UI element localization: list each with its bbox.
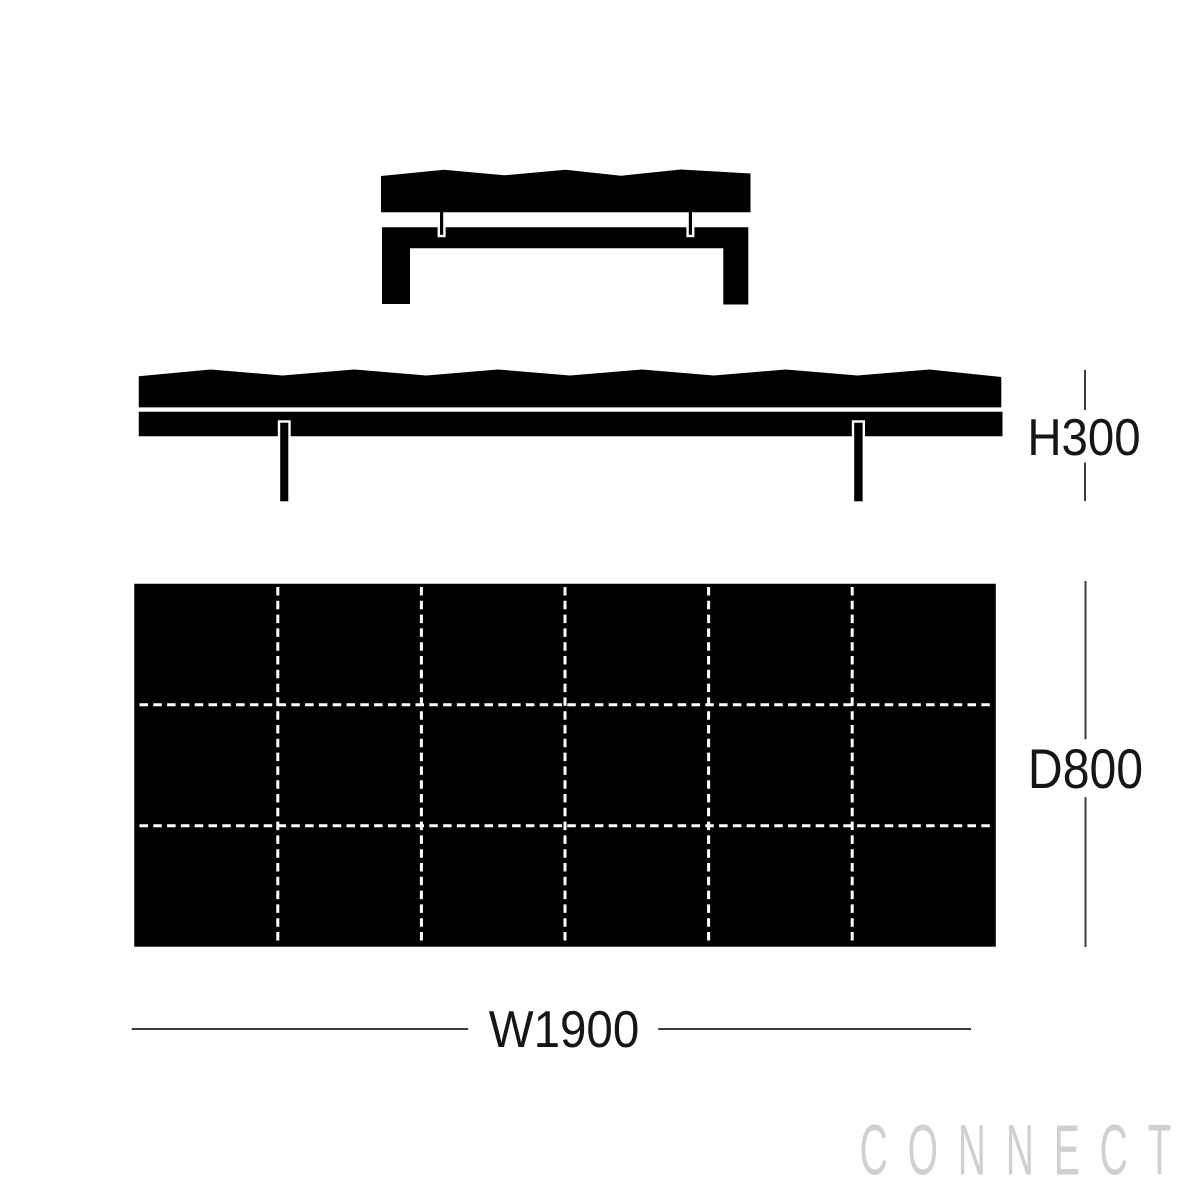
svg-text:W1900: W1900 xyxy=(489,1000,640,1058)
svg-text:CONNECT: CONNECT xyxy=(860,1111,1192,1190)
svg-text:H300: H300 xyxy=(1027,408,1140,467)
svg-text:D800: D800 xyxy=(1028,739,1143,801)
